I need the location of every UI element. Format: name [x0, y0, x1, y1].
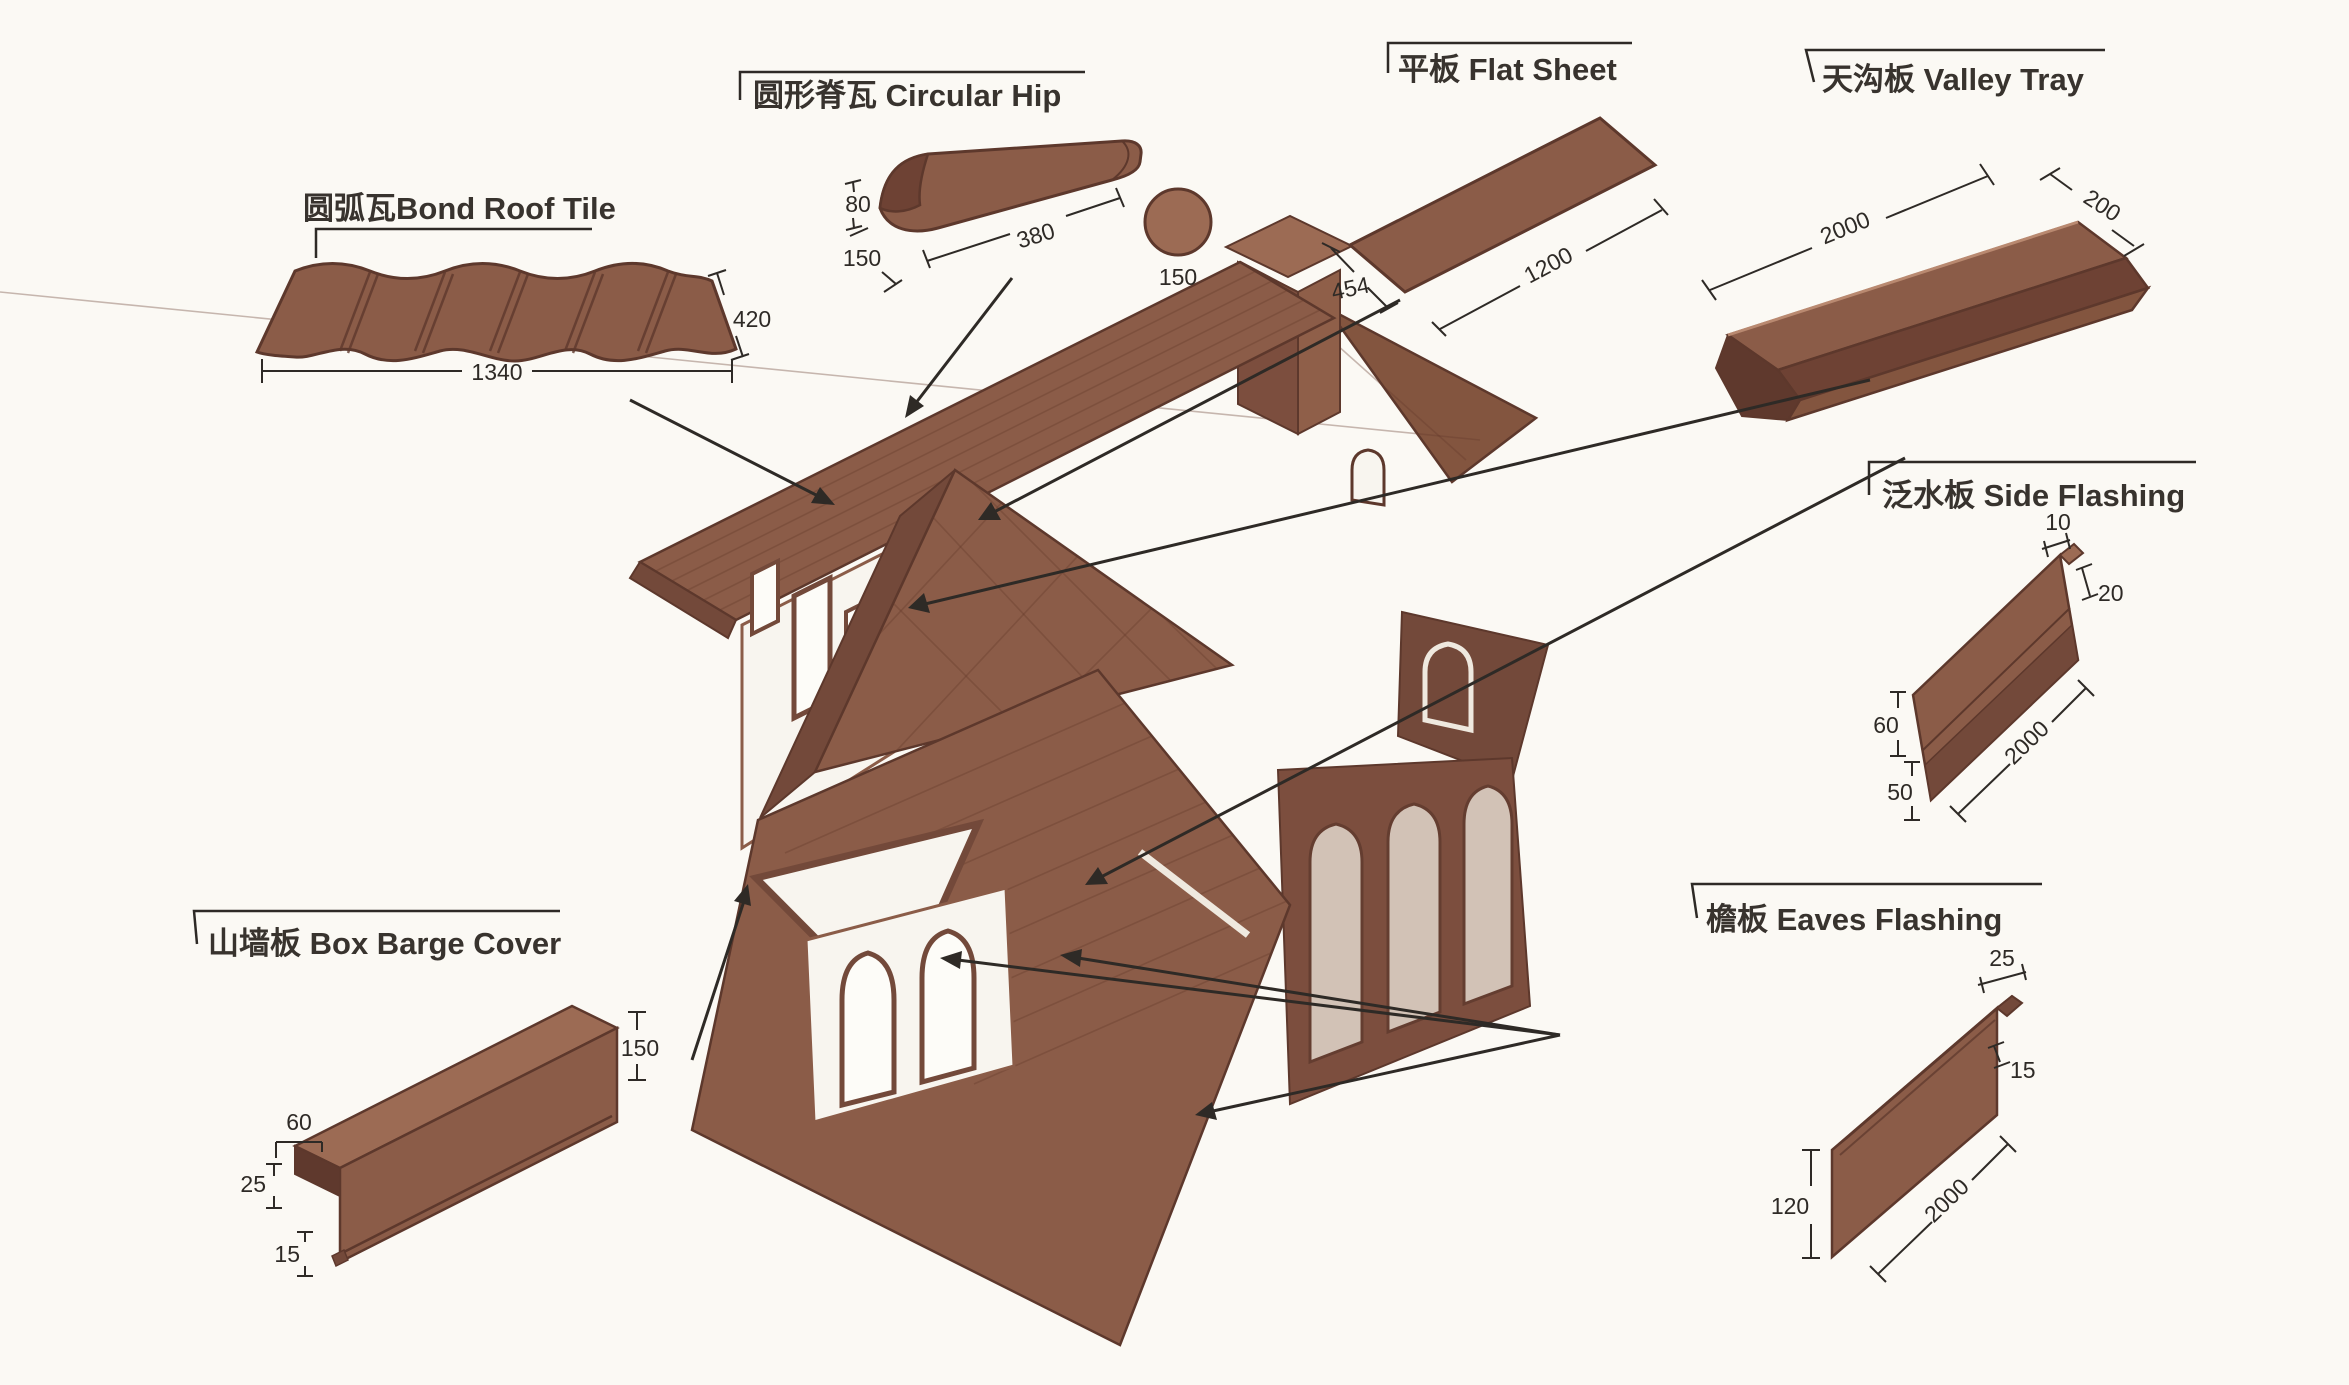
label-bracket — [316, 229, 592, 258]
dim-60: 60 — [1873, 692, 1906, 756]
dim-25: 25 — [1978, 945, 2026, 993]
label-zh: 圆形脊瓦 — [753, 78, 886, 113]
dim-15-lip: 15 — [274, 1232, 313, 1276]
component-box-barge-cover: 山墙板 Box Barge Cover 150 60 25 15 — [194, 911, 659, 1276]
dim-150-end: 150 — [621, 1012, 659, 1080]
valley-tray-drawing — [1716, 222, 2148, 420]
component-eaves-flashing: 檐板 Eaves Flashing 25 15 120 — [1692, 884, 2042, 1282]
roof-accessories-diagram: 圆弧瓦Bond Roof Tile 420 1340 圆形脊瓦 Circular… — [0, 0, 2349, 1385]
svg-text:200: 200 — [2079, 184, 2125, 227]
label-zh: 檐板 — [1706, 902, 1777, 937]
component-label: 圆弧瓦Bond Roof Tile — [303, 191, 616, 226]
flat-sheet-drawing — [1350, 118, 1655, 292]
circular-hip-drawing — [880, 141, 1141, 231]
svg-text:150: 150 — [621, 1035, 659, 1061]
component-label: 山墙板 Box Barge Cover — [208, 926, 561, 961]
window-icon — [752, 561, 778, 634]
label-en: Flat Sheet — [1469, 52, 1617, 87]
side-flashing-drawing — [1913, 544, 2083, 800]
component-bond-roof-tile: 圆弧瓦Bond Roof Tile 420 1340 — [257, 191, 771, 385]
diagram-canvas: 圆弧瓦Bond Roof Tile 420 1340 圆形脊瓦 Circular… — [0, 0, 2349, 1385]
svg-text:2000: 2000 — [1816, 206, 1873, 249]
component-valley-tray: 天沟板 Valley Tray 2000 200 — [1702, 50, 2148, 420]
conservatory-wall — [1278, 758, 1530, 1104]
label-en: Valley Tray — [1924, 62, 2085, 97]
svg-text:2000: 2000 — [1919, 1173, 1974, 1227]
dim-1340: 1340 — [262, 359, 732, 385]
bond-roof-tile-drawing — [257, 264, 736, 362]
label-en: Bond Roof Tile — [396, 191, 616, 226]
dim-150-diameter: 150 — [1159, 264, 1197, 290]
dim-20: 20 — [2076, 564, 2124, 606]
label-en: Side Flashing — [1984, 478, 2186, 513]
component-label: 平板 Flat Sheet — [1398, 52, 1617, 87]
svg-text:15: 15 — [274, 1241, 300, 1267]
svg-text:50: 50 — [1887, 779, 1913, 805]
component-side-flashing: 泛水板 Side Flashing 10 20 60 50 — [1869, 462, 2196, 822]
label-zh: 山墙板 — [208, 926, 310, 961]
component-flat-sheet: 平板 Flat Sheet 454 1200 — [1322, 43, 1668, 336]
svg-text:25: 25 — [1989, 945, 2015, 971]
dim-80: 80 — [845, 180, 871, 230]
svg-text:20: 20 — [2098, 580, 2124, 606]
label-zh: 天沟板 — [1822, 62, 1924, 97]
house-illustration — [0, 216, 1548, 1345]
svg-text:60: 60 — [286, 1109, 312, 1135]
svg-text:120: 120 — [1771, 1193, 1809, 1219]
component-label: 天沟板 Valley Tray — [1822, 62, 2085, 97]
svg-text:1340: 1340 — [471, 359, 522, 385]
dim-50: 50 — [1887, 762, 1920, 820]
dim-25-left: 25 — [240, 1164, 282, 1208]
label-en: Eaves Flashing — [1777, 902, 2003, 937]
label-zh: 平板 — [1398, 52, 1469, 87]
dim-150-edge: 150 — [843, 228, 902, 292]
component-label: 圆形脊瓦 Circular Hip — [753, 78, 1061, 113]
svg-text:80: 80 — [845, 191, 871, 217]
component-label: 檐板 Eaves Flashing — [1706, 902, 2002, 937]
svg-text:15: 15 — [2010, 1057, 2036, 1083]
svg-text:1200: 1200 — [1520, 241, 1577, 288]
arch-window-icon — [1388, 804, 1440, 1032]
hip-cross-section-circle — [1145, 189, 1211, 255]
label-en: Box Barge Cover — [310, 926, 562, 961]
svg-text:10: 10 — [2045, 509, 2071, 535]
svg-text:25: 25 — [240, 1171, 266, 1197]
component-label: 泛水板 Side Flashing — [1882, 478, 2185, 513]
svg-text:420: 420 — [733, 306, 771, 332]
dim-120: 120 — [1771, 1150, 1820, 1258]
arch-window-icon — [842, 953, 894, 1105]
component-circular-hip: 圆形脊瓦 Circular Hip 80 150 380 150 — [740, 72, 1211, 292]
label-en: Circular Hip — [886, 78, 1062, 113]
arrow-bond-roof-tile — [630, 400, 835, 505]
svg-text:60: 60 — [1873, 712, 1899, 738]
svg-text:150: 150 — [843, 245, 881, 271]
label-zh: 圆弧瓦 — [303, 191, 396, 226]
arch-window-icon — [1464, 786, 1512, 1004]
arch-window-icon — [1310, 824, 1362, 1062]
label-zh: 泛水板 — [1882, 478, 1984, 513]
svg-text:380: 380 — [1014, 217, 1058, 253]
arch-window-icon — [922, 931, 974, 1082]
box-barge-cover-drawing — [295, 1006, 617, 1266]
